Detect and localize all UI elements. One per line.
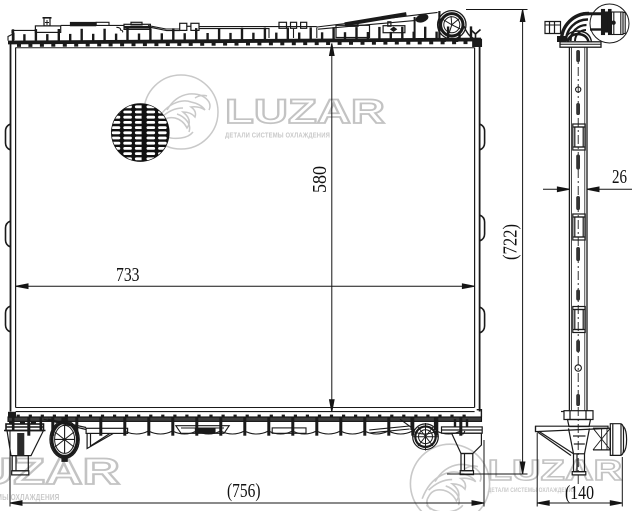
svg-text:(140: (140 bbox=[565, 483, 594, 504]
svg-text:(756): (756) bbox=[227, 481, 261, 502]
svg-text:733: 733 bbox=[116, 265, 140, 286]
svg-text:26: 26 bbox=[612, 167, 627, 188]
svg-text:580: 580 bbox=[310, 166, 331, 193]
svg-text:(722): (722) bbox=[501, 224, 522, 260]
